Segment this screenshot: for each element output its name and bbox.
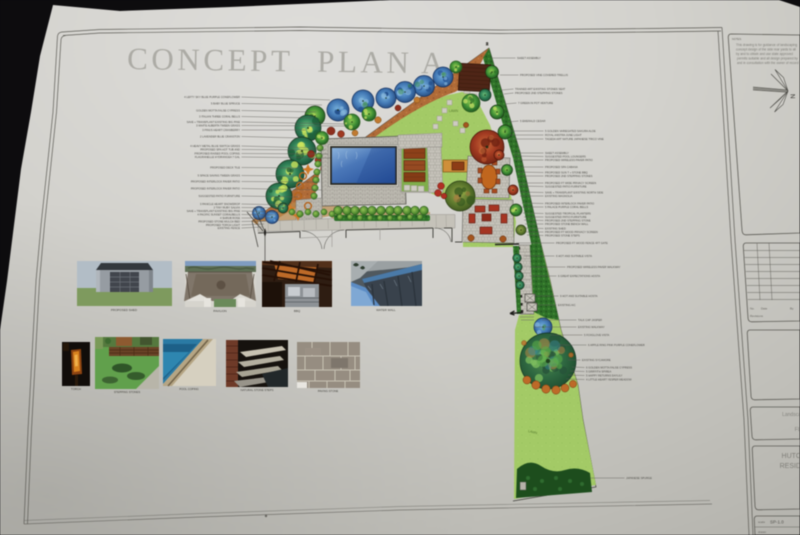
svg-text:3 ITALIAN THREE CORAL BELLS: 3 ITALIAN THREE CORAL BELLS: [199, 115, 240, 119]
svg-text:PAVING STONE: PAVING STONE: [318, 389, 339, 393]
svg-text:SP-1.0: SP-1.0: [770, 520, 784, 525]
svg-text:4 HEAVY METAL BLUE SWITCH GRAS: 4 HEAVY METAL BLUE SWITCH GRASS: [190, 144, 240, 148]
svg-text:SUGGESTED POOL LOUNGERS: SUGGESTED POOL LOUNGERS: [545, 155, 586, 159]
svg-text:PROPOSED WIRELESS PAVER PATIO: PROPOSED WIRELESS PAVER PATIO: [545, 158, 593, 162]
svg-text:NOTES:: NOTES:: [732, 37, 742, 41]
svg-text:SUGGESTED TROPICAL PLANTERS: SUGGESTED TROPICAL PLANTERS: [545, 212, 591, 216]
svg-text:3 PANICLE HEART SNOWDROP: 3 PANICLE HEART SNOWDROP: [200, 202, 240, 206]
svg-text:6 GOLDEN MOTTA FALSE CYPRESS: 6 GOLDEN MOTTA FALSE CYPRESS: [586, 366, 632, 370]
svg-text:BBQ: BBQ: [294, 309, 301, 313]
svg-text:EXISTING FENCE: EXISTING FENCE: [218, 226, 241, 230]
svg-text:LAWN: LAWN: [449, 109, 459, 113]
svg-text:PROPOSED SHED: PROPOSED SHED: [111, 308, 138, 312]
svg-text:TAGEDA ART NATURE JAPANESE TRI: TAGEDA ART NATURE JAPANESE TRICO VINE: [545, 137, 604, 141]
svg-text:7 GREEN IN POT VENTURE: 7 GREEN IN POT VENTURE: [518, 101, 553, 105]
svg-text:EXISTING WALKWAY: EXISTING WALKWAY: [578, 325, 605, 329]
svg-text:5 GRIFFITH SPIREA: 5 GRIFFITH SPIREA: [586, 370, 611, 374]
svg-text:GOLDEN MOTTA FALSE CYPRESS: GOLDEN MOTTA FALSE CYPRESS: [196, 109, 240, 113]
svg-text:scale: scale: [758, 520, 765, 524]
svg-text:2 LAVENDER BLUE CRANSTON: 2 LAVENDER BLUE CRANSTON: [200, 135, 240, 139]
svg-text:concept design of the side rea: concept design of the side rear yards to…: [736, 48, 796, 52]
svg-text:SAVE + TRANSPLANT EXISTING BIG: SAVE + TRANSPLANT EXISTING BIG PINE: [187, 209, 241, 213]
svg-text:TORCH: TORCH: [71, 387, 81, 391]
svg-text:EXISTING A/C: EXISTING A/C: [558, 303, 576, 307]
svg-text:PROPOSED INTERLOCK PAVER PATIO: PROPOSED INTERLOCK PAVER PATIO: [191, 187, 240, 191]
svg-text:PROPOSED WIRELESS PAVER WALKWA: PROPOSED WIRELESS PAVER WALKWAY: [567, 265, 621, 269]
svg-text:This drawing is for guidance o: This drawing is for guidance of landscap…: [736, 43, 797, 47]
svg-text:CONCEPT: CONCEPT: [127, 41, 294, 78]
svg-text:PROPOSED FT WIDE PRIVACY SCREE: PROPOSED FT WIDE PRIVACY SCREEN: [545, 181, 596, 185]
svg-text:RESID: RESID: [780, 463, 800, 470]
svg-text:PROPOSED STONE MULCH BED: PROPOSED STONE MULCH BED: [198, 220, 240, 224]
svg-text:4 LEFTY SKY BLUE PURPLE CONEFL: 4 LEFTY SKY BLUE PURPLE CONEFLOWER: [184, 95, 240, 99]
svg-text:permits suitable and all desig: permits suitable and all design prepared…: [737, 57, 798, 61]
svg-text:PROPOSED VINE COVERED TRELLIS: PROPOSED VINE COVERED TRELLIS: [520, 73, 568, 77]
svg-text:Landsca: Landsca: [782, 412, 800, 418]
svg-text:PROPOSED STONE BENCH WALL: PROPOSED STONE BENCH WALL: [545, 222, 589, 226]
svg-text:PROPOSED RAISED POOL COPING: PROPOSED RAISED POOL COPING: [195, 152, 240, 156]
svg-text:N: N: [789, 94, 796, 99]
svg-text:6 HOT AND SUITABLE VISTA: 6 HOT AND SUITABLE VISTA: [556, 254, 592, 258]
svg-text:PROPOSED FT WOOD PRIVACY SCREE: PROPOSED FT WOOD PRIVACY SCREEN: [545, 230, 598, 234]
svg-text:PROPOSED 2ND STEPPING STONE: PROPOSED 2ND STEPPING STONE: [545, 219, 591, 223]
svg-text:JAPANESE SPURGE: JAPANESE SPURGE: [626, 476, 652, 480]
svg-text:ROYAL ANSTRA JUNE LIGHT: ROYAL ANSTRA JUNE LIGHT: [545, 133, 582, 137]
svg-text:PROPOSED INTERLOCK PAVER PATIO: PROPOSED INTERLOCK PAVER PATIO: [545, 202, 594, 206]
svg-text:SHEET ASSEMBLY: SHEET ASSEMBLY: [545, 151, 569, 155]
svg-text:SUGGESTED PATIO FURNITURE: SUGGESTED PATIO FURNITURE: [545, 185, 587, 189]
svg-text:TALK CAP JASPER: TALK CAP JASPER: [578, 318, 602, 322]
svg-text:HUTC: HUTC: [782, 453, 800, 460]
svg-text:TRAINED ART EXISTING STONES SE: TRAINED ART EXISTING STONES SEAT: [515, 87, 566, 91]
svg-text:FLAGRANELLE HYDRANGEA 7 GAL: FLAGRANELLE HYDRANGEA 7 GAL: [195, 155, 241, 159]
svg-text:SAVE + TRANSPLANT EXISTING BIG: SAVE + TRANSPLANT EXISTING BIG PINE: [187, 120, 241, 124]
svg-text:PROPOSED SPA CABANA: PROPOSED SPA CABANA: [545, 165, 578, 169]
svg-text:5 BABY BLUE SPRUCE: 5 BABY BLUE SPRUCE: [211, 102, 240, 106]
svg-text:Date: Date: [761, 307, 768, 311]
svg-text:EXISTING SYCAMORE: EXISTING SYCAMORE: [582, 358, 611, 362]
svg-text:9 HOT AND SUITABLE HOSTA: 9 HOT AND SUITABLE HOSTA: [560, 294, 598, 298]
svg-text:4 SHRUB ROSE: 4 SHRUB ROSE: [220, 216, 240, 220]
svg-text:PROPOSED SUN T + STONE BBQ: PROPOSED SUN T + STONE BBQ: [545, 171, 588, 175]
svg-text:POOL COPING: POOL COPING: [179, 387, 198, 391]
svg-text:SAVE + TRANSPLANT EXISTING NOR: SAVE + TRANSPLANT EXISTING NORTH SIDE: [545, 191, 603, 195]
svg-text:PROPOSED SPA HOT TUB AND: PROPOSED SPA HOT TUB AND: [200, 148, 240, 152]
svg-text:PROPOSED STONE STEPS: PROPOSED STONE STEPS: [545, 234, 580, 238]
svg-text:WATER WALL: WATER WALL: [376, 308, 396, 312]
svg-text:5 HAPPY RETURNS DAYLILY: 5 HAPPY RETURNS DAYLILY: [586, 374, 623, 378]
svg-text:by and to obtain and use state: by and to obtain and use state approved: [736, 52, 793, 56]
svg-text:PROPOSED FT WOOD FENCE 4FT GAT: PROPOSED FT WOOD FENCE 4FT GATE: [556, 241, 608, 245]
svg-text:5 PALACE PURPLE CORAL BELLS: 5 PALACE PURPLE CORAL BELLS: [545, 205, 588, 209]
svg-text:SUGGESTED PATIO FURNITURE: SUGGESTED PATIO FURNITURE: [545, 215, 587, 219]
svg-text:3 WHITE ALBERTA TWEEN GRASS: 3 WHITE ALBERTA TWEEN GRASS: [196, 124, 240, 128]
svg-text:PAVILION: PAVILION: [213, 309, 226, 313]
svg-text:and in consultation with the o: and in consultation with the owner of re…: [737, 61, 799, 65]
svg-text:2 TINY RUBY SALVIA: 2 TINY RUBY SALVIA: [214, 206, 241, 210]
svg-text:EXISTING MAGNOLIA: EXISTING MAGNOLIA: [545, 194, 573, 198]
svg-text:drawn: drawn: [758, 530, 767, 534]
svg-text:4 LITTLE HEART YESPER MEADOW: 4 LITTLE HEART YESPER MEADOW: [586, 378, 632, 382]
svg-text:PROPOSED 2ND STEPPING STONES: PROPOSED 2ND STEPPING STONES: [545, 174, 593, 178]
svg-text:5 FOXGLOVE VISTA: 5 FOXGLOVE VISTA: [584, 333, 610, 337]
svg-text:Revisions: Revisions: [750, 314, 764, 318]
svg-text:No.: No.: [750, 307, 755, 311]
svg-text:FL: FL: [795, 427, 800, 433]
svg-text:6 GREAT EXPECTATIONS HOSTA: 6 GREAT EXPECTATIONS HOSTA: [558, 274, 600, 278]
svg-text:PLAN: PLAN: [317, 44, 413, 80]
svg-text:3 PINUS HEART CRANBERRY: 3 PINUS HEART CRANBERRY: [202, 128, 240, 132]
svg-text:NATURAL STONE STEPS: NATURAL STONE STEPS: [240, 388, 273, 392]
svg-text:5 EMERALD CEDAR: 5 EMERALD CEDAR: [520, 119, 545, 123]
svg-text:STEPPING STONES: STEPPING STONES: [114, 390, 141, 394]
svg-text:By: By: [790, 307, 794, 311]
svg-text:PROPOSED INTERLOCK PAVER PATIO: PROPOSED INTERLOCK PAVER PATIO: [191, 180, 240, 184]
svg-text:PROPOSED 2ND STEPPING STONES: PROPOSED 2ND STEPPING STONES: [515, 91, 563, 95]
svg-text:PROPOSED DECK TILE: PROPOSED DECK TILE: [210, 166, 240, 170]
svg-text:SUGGESTED PATIO FURNITURE: SUGGESTED PATIO FURNITURE: [198, 194, 240, 198]
svg-text:5 GOLDEN VARIEGATED SAKURA ALO: 5 GOLDEN VARIEGATED SAKURA ALOE: [545, 129, 596, 133]
svg-text:EXISTING SHED: EXISTING SHED: [545, 227, 566, 231]
svg-text:4 PACIFIC SUNSET CORALBELLS: 4 PACIFIC SUNSET CORALBELLS: [197, 213, 240, 217]
svg-text:5 SPACE SAVING TWEEN GRASS: 5 SPACE SAVING TWEEN GRASS: [198, 174, 241, 178]
svg-text:6 APPLE RING PINK PURPLE CONEF: 6 APPLE RING PINK PURPLE CONEFLOWER: [588, 343, 645, 347]
svg-text:SHEET ASSEMBLY: SHEET ASSEMBLY: [517, 56, 541, 60]
